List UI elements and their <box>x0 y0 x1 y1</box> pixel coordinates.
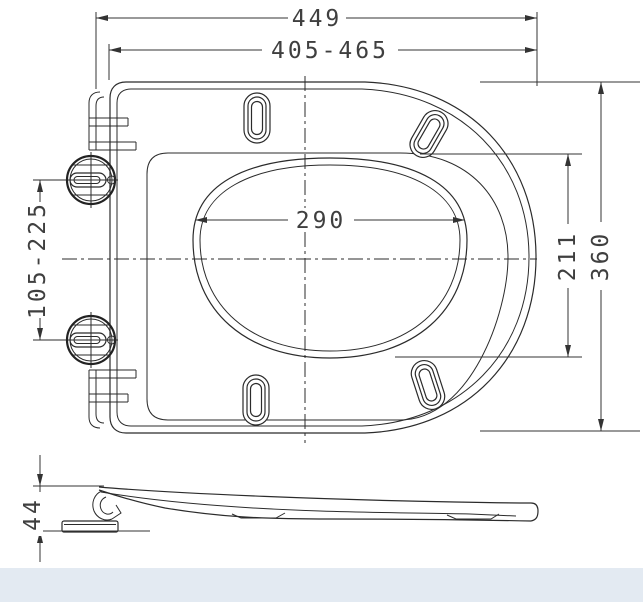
hinge-bracket-top <box>89 92 136 150</box>
dim-hinge-hole-range: 105-225 <box>25 180 51 340</box>
dim-label-installation-range: 405-465 <box>271 38 389 64</box>
bumper-slot-bottom-left <box>243 375 269 425</box>
bumper-slot-bottom-right <box>408 357 448 413</box>
side-view <box>62 487 538 532</box>
bumper-slot-top-left <box>244 93 270 143</box>
dim-installation-range: 405-465 <box>109 38 537 80</box>
seat-outline-inner <box>117 89 529 426</box>
hinge-bracket-bottom <box>89 370 136 428</box>
mounting-plate <box>62 521 118 532</box>
opening-inner <box>200 165 460 351</box>
dim-label-overall-depth: 360 <box>588 231 614 282</box>
dim-seat-height: 44 <box>20 455 150 562</box>
technical-drawing: 449 405-465 290 211 360 105-225 <box>0 0 643 602</box>
seat-outline-outer <box>110 82 536 433</box>
dim-label-hinge-hole-range: 105-225 <box>25 201 51 319</box>
hinge-bottom <box>33 312 118 368</box>
dim-label-opening-width: 290 <box>296 208 347 234</box>
hinge-top <box>33 152 118 208</box>
seat-side-profile <box>99 487 538 521</box>
top-view <box>33 76 537 443</box>
opening-outer <box>193 158 467 358</box>
dim-label-opening-length: 211 <box>555 231 581 282</box>
dim-opening-width: 290 <box>195 208 465 234</box>
drawing-canvas: 449 405-465 290 211 360 105-225 <box>0 0 643 602</box>
dim-label-overall-width: 449 <box>292 6 343 32</box>
dim-opening-length: 211 <box>395 154 582 357</box>
dim-label-seat-height: 44 <box>20 497 46 531</box>
footer-band <box>0 568 643 602</box>
